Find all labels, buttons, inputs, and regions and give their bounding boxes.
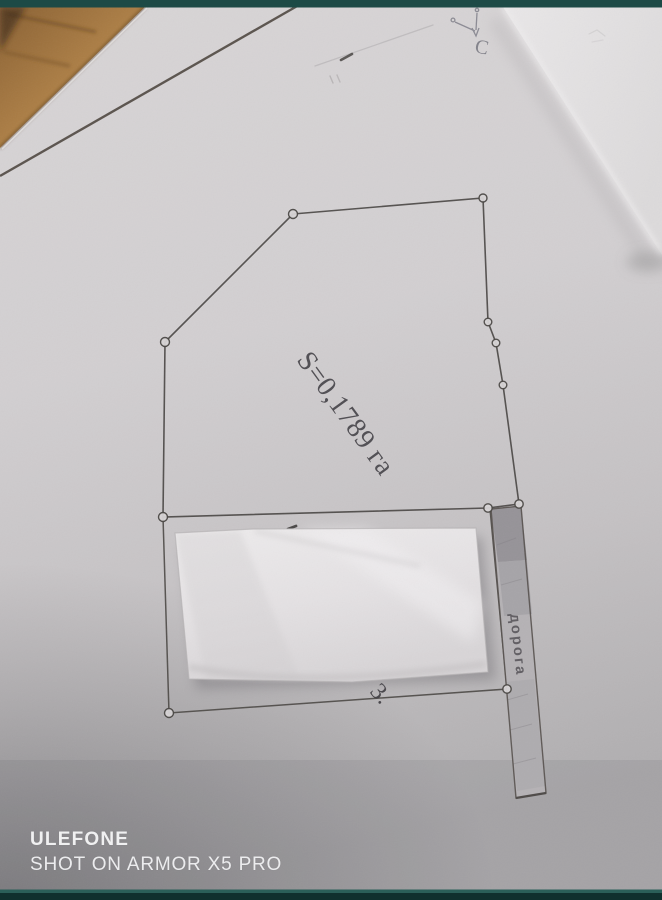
watermark-tagline: SHOT ON ARMOR X5 PRO	[30, 855, 282, 875]
watermark-brand: ULEFONE	[30, 830, 282, 850]
letterbox-top	[0, 0, 662, 8]
letterbox-bottom	[0, 893, 662, 900]
plan-photo: С дорога	[0, 0, 662, 900]
photo-viewport: С дорога	[0, 0, 662, 900]
watermark: ULEFONE SHOT ON ARMOR X5 PRO	[30, 830, 282, 875]
letterbox-bottom-highlight	[0, 890, 662, 894]
camera-grain	[0, 7, 662, 892]
